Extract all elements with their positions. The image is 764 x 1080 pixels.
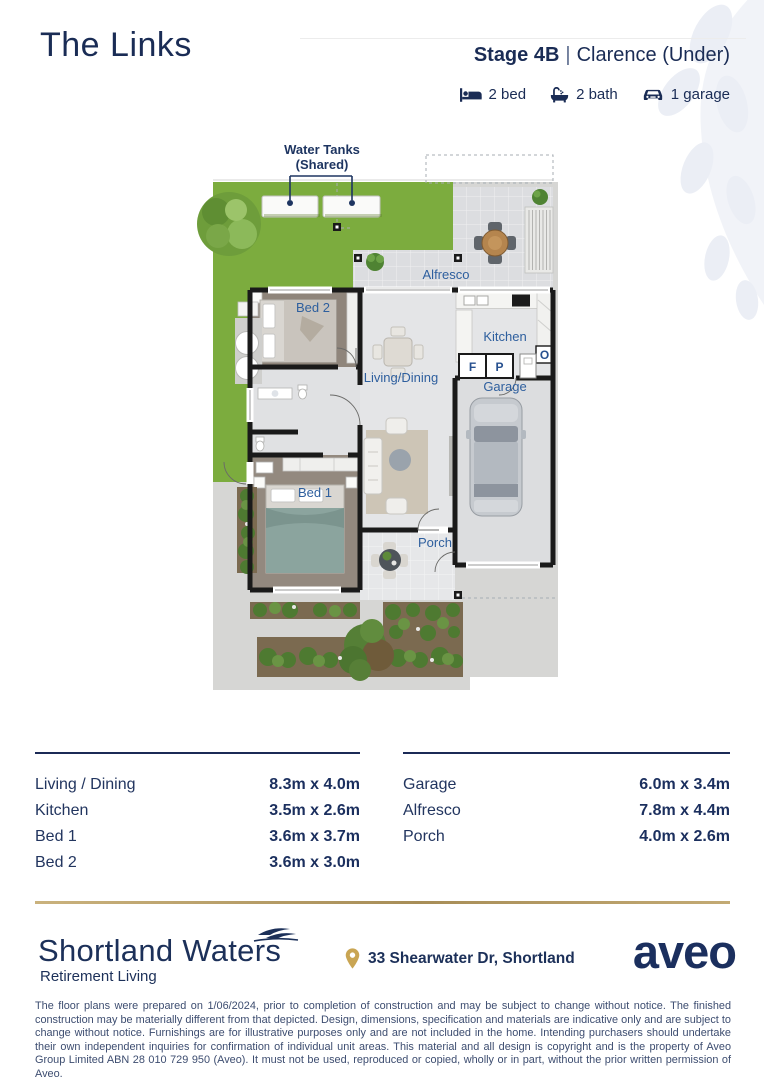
table-row: Kitchen 3.5m x 2.6m bbox=[35, 798, 360, 824]
address-line: 33 Shearwater Dr, Shortland bbox=[345, 948, 575, 969]
table-row: Alfresco 7.8m x 4.4m bbox=[403, 798, 730, 824]
dimensions-rule-right bbox=[403, 752, 730, 754]
stage-separator: | bbox=[559, 44, 576, 66]
brand-logo: Shortland Waters bbox=[38, 933, 281, 969]
room-name: Bed 1 bbox=[35, 828, 77, 846]
room-name: Kitchen bbox=[35, 802, 88, 820]
floorplan-drawing: Water Tanks (Shared) Alfresco Bed 2 Kitc… bbox=[88, 140, 568, 700]
feature-bed-label: 2 bed bbox=[489, 86, 527, 103]
feature-garage-label: 1 garage bbox=[671, 86, 730, 103]
label-pantry: P bbox=[495, 360, 503, 374]
label-bed2: Bed 2 bbox=[296, 300, 330, 315]
footer-divider bbox=[35, 901, 730, 904]
room-size: 3.6m x 3.0m bbox=[269, 854, 360, 872]
variant-label: Clarence (Under) bbox=[577, 44, 730, 66]
feature-bed: 2 bed bbox=[460, 86, 527, 103]
dimensions-table-left: Living / Dining 8.3m x 4.0m Kitchen 3.5m… bbox=[35, 772, 360, 876]
room-size: 3.5m x 2.6m bbox=[269, 802, 360, 820]
water-tanks-label-line2: (Shared) bbox=[296, 157, 349, 172]
header-rule bbox=[300, 38, 746, 39]
room-name: Garage bbox=[403, 776, 456, 794]
table-row: Bed 2 3.6m x 3.0m bbox=[35, 850, 360, 876]
garage-icon bbox=[642, 87, 664, 102]
table-row: Bed 1 3.6m x 3.7m bbox=[35, 824, 360, 850]
floorplan-page: The Links Stage 4B|Clarence (Under) 2 be… bbox=[0, 0, 764, 1080]
deck-bench bbox=[525, 207, 553, 273]
label-porch: Porch bbox=[418, 535, 452, 550]
label-garage: Garage bbox=[483, 379, 526, 394]
page-title: The Links bbox=[40, 26, 192, 65]
label-living-dining: Living/Dining bbox=[364, 370, 438, 385]
disclaimer-text: The floor plans were prepared on 1/06/20… bbox=[35, 1000, 731, 1080]
stage-variant: Stage 4B|Clarence (Under) bbox=[474, 44, 730, 67]
small-palm-alfresco bbox=[366, 253, 384, 271]
brand-tagline: Retirement Living bbox=[40, 968, 157, 985]
location-pin-icon bbox=[345, 948, 360, 969]
table-row: Garage 6.0m x 3.4m bbox=[403, 772, 730, 798]
water-tanks-label-line1: Water Tanks bbox=[284, 142, 360, 157]
feature-summary: 2 bed 2 bath 1 garage bbox=[460, 86, 730, 103]
feature-bath-label: 2 bath bbox=[576, 86, 618, 103]
car bbox=[466, 398, 526, 516]
dimensions-table-right: Garage 6.0m x 3.4m Alfresco 7.8m x 4.4m … bbox=[403, 772, 730, 850]
room-name: Bed 2 bbox=[35, 854, 77, 872]
room-name: Living / Dining bbox=[35, 776, 136, 794]
room-size: 8.3m x 4.0m bbox=[269, 776, 360, 794]
room-size: 3.6m x 3.7m bbox=[269, 828, 360, 846]
room-name: Porch bbox=[403, 828, 445, 846]
room-size: 4.0m x 2.6m bbox=[639, 828, 730, 846]
room-size: 6.0m x 3.4m bbox=[639, 776, 730, 794]
label-oven: O bbox=[540, 348, 549, 362]
bed-icon bbox=[460, 88, 482, 102]
label-alfresco: Alfresco bbox=[423, 267, 470, 282]
feature-bath: 2 bath bbox=[550, 86, 618, 103]
room-name: Alfresco bbox=[403, 802, 461, 820]
table-row: Porch 4.0m x 2.6m bbox=[403, 824, 730, 850]
dimensions-rule-left bbox=[35, 752, 360, 754]
label-bed1: Bed 1 bbox=[298, 485, 332, 500]
address-text: 33 Shearwater Dr, Shortland bbox=[368, 950, 575, 968]
label-kitchen: Kitchen bbox=[483, 329, 526, 344]
bird-swoosh-icon bbox=[252, 925, 300, 943]
small-palm-corner bbox=[532, 189, 548, 205]
feature-garage: 1 garage bbox=[642, 86, 730, 103]
table-row: Living / Dining 8.3m x 4.0m bbox=[35, 772, 360, 798]
stage-label: Stage 4B bbox=[474, 44, 560, 66]
label-fridge: F bbox=[469, 360, 476, 374]
tree bbox=[197, 192, 261, 256]
aveo-logo: aveo bbox=[633, 924, 736, 979]
room-size: 7.8m x 4.4m bbox=[639, 802, 730, 820]
bath-icon bbox=[550, 87, 569, 103]
